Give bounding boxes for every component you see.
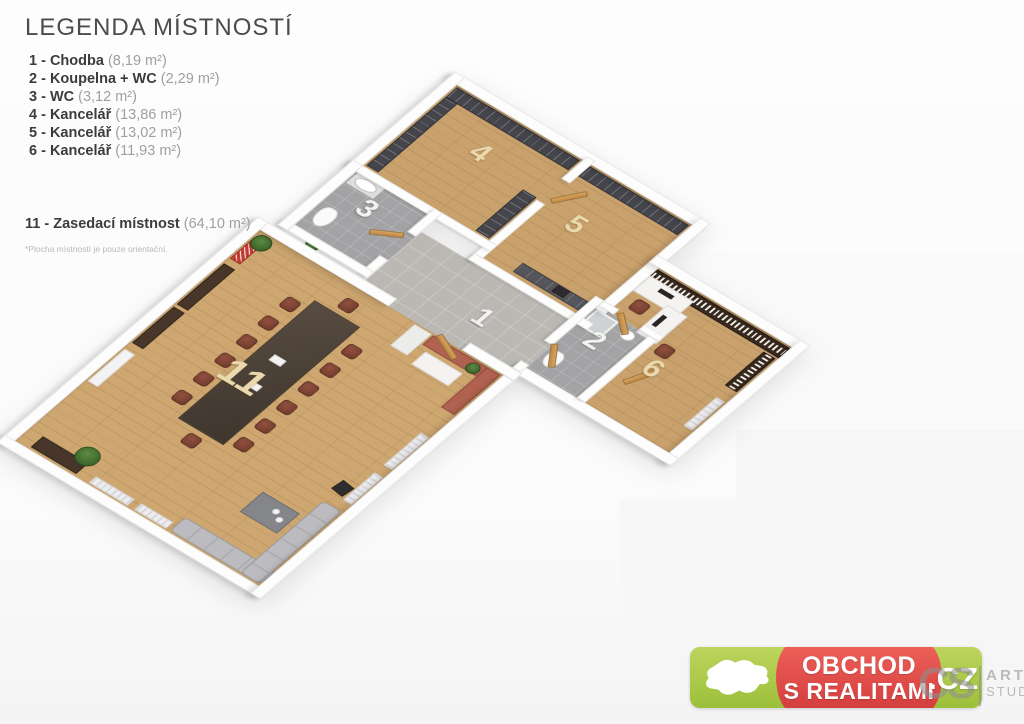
legend-item-5: 5 - Kancelář (13,02 m²) [29, 124, 293, 142]
legend-item-6: 6 - Kancelář (11,93 m²) [29, 142, 293, 160]
legend-item-11: 11 - Zasedací místnost (64,10 m²) [25, 216, 293, 232]
legend-item-4: 4 - Kancelář (13,86 m²) [29, 106, 293, 124]
studio-line1: ART [986, 668, 1024, 684]
badge-line2: S REALITAMI [784, 679, 935, 703]
legend-item-2: 2 - Koupelna + WC (2,29 m²) [29, 70, 293, 88]
legend-footnote: *Plocha místností je pouze orientační. [25, 244, 293, 254]
background-tint-block [620, 500, 740, 656]
art-studio-watermark: CS ART STUDIO [918, 662, 1024, 706]
badge-line1: OBCHOD [802, 653, 916, 679]
background-tint-block [736, 430, 1024, 656]
studio-line2: STUDIO [986, 684, 1024, 699]
studio-divider [979, 666, 981, 706]
legend-item-3: 3 - WC (3,12 m²) [29, 88, 293, 106]
czech-map-icon [698, 656, 772, 700]
legend-item-1: 1 - Chodba (8,19 m²) [29, 52, 293, 70]
studio-initials: CS [918, 662, 973, 706]
legend-title: LEGENDA MÍSTNOSTÍ [25, 14, 293, 42]
legend-list: 1 - Chodba (8,19 m²) 2 - Koupelna + WC (… [29, 52, 293, 160]
room-legend: LEGENDA MÍSTNOSTÍ 1 - Chodba (8,19 m²) 2… [25, 14, 293, 254]
